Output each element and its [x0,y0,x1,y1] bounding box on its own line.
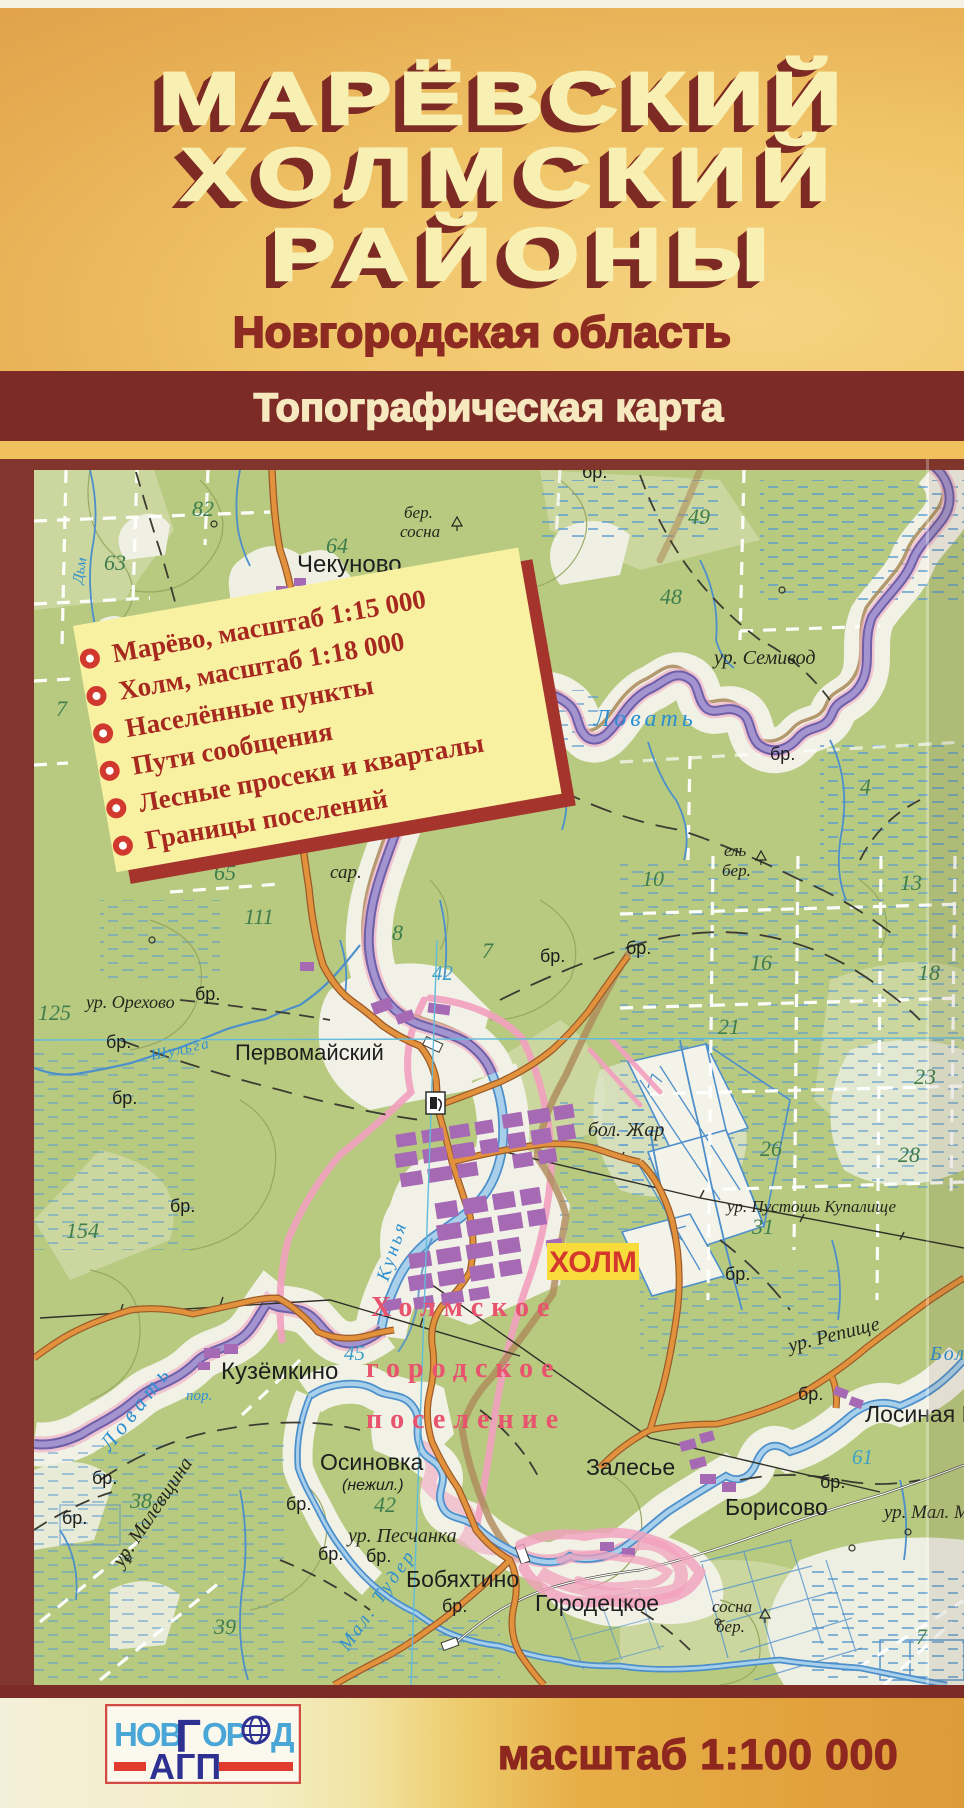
svg-text:Залесье: Залесье [586,1454,675,1480]
svg-text:ур. Орехово: ур. Орехово [84,992,175,1012]
svg-text:13: 13 [900,870,922,895]
svg-text:38: 38 [129,1488,152,1513]
svg-text:64: 64 [326,533,348,558]
svg-text:городское: городское [366,1353,562,1384]
svg-text:ель: ель [724,841,747,860]
svg-text:бр.: бр. [770,744,795,764]
svg-text:Ловать: Ловать [593,706,697,732]
svg-text:сар.: сар. [330,862,362,883]
svg-text:бр.: бр. [626,938,651,958]
svg-text:бр.: бр. [582,470,607,482]
svg-text:Кузёмкино: Кузёмкино [221,1358,338,1385]
svg-text:Холмское: Холмское [371,1292,557,1323]
svg-text:бр.: бр. [286,1494,311,1514]
svg-text:63: 63 [104,550,126,575]
svg-text:45: 45 [344,1341,365,1365]
svg-text:42: 42 [432,961,454,985]
svg-text:бол. Жар: бол. Жар [588,1119,664,1141]
svg-text:28: 28 [898,1142,920,1167]
svg-text:Первомайский: Первомайский [235,1040,384,1065]
svg-text:39: 39 [213,1614,236,1639]
svg-text:125: 125 [38,1000,71,1025]
svg-text:бр.: бр. [725,1264,750,1284]
svg-text:бр.: бр. [366,1546,391,1566]
svg-text:бр.: бр. [798,1384,823,1404]
svg-text:бр.: бр. [62,1508,87,1528]
svg-text:21: 21 [718,1014,740,1039]
svg-text:бр.: бр. [195,984,220,1004]
svg-text:ур. Песчанка: ур. Песчанка [346,1525,457,1547]
svg-text:бр.: бр. [442,1596,467,1616]
svg-text:7: 7 [56,696,68,721]
svg-text:Городецкое: Городецкое [535,1590,659,1616]
svg-text:49: 49 [688,504,710,529]
svg-text:154: 154 [66,1218,99,1243]
svg-text:61: 61 [852,1445,873,1469]
svg-text:65: 65 [214,860,236,885]
svg-text:Борисово: Борисово [725,1494,828,1520]
svg-text:31: 31 [751,1214,774,1239]
svg-text:бер.: бер. [722,861,751,880]
svg-text:111: 111 [244,904,274,929]
svg-text:АГП: АГП [149,1746,221,1784]
svg-text:ур. Пустошь Купалище: ур. Пустошь Купалище [725,1197,897,1216]
svg-text:пор.: пор. [186,1388,212,1404]
svg-text:Д: Д [271,1716,295,1753]
svg-text:бр.: бр. [112,1088,137,1108]
svg-text:бр.: бр. [92,1468,117,1488]
svg-text:48: 48 [660,584,682,609]
svg-text:42: 42 [374,1492,396,1517]
svg-text:бр.: бр. [820,1472,845,1492]
svg-text:ХОЛМ: ХОЛМ [549,1246,637,1279]
svg-text:82: 82 [192,496,214,521]
svg-text:бер.: бер. [404,503,433,522]
svg-text:сосна: сосна [712,1597,752,1616]
svg-text:бр.: бр. [170,1196,195,1216]
svg-text:поселение: поселение [366,1404,566,1435]
svg-text:7: 7 [482,938,494,963]
svg-text:Бобяхтино: Бобяхтино [406,1566,519,1592]
svg-text:бр.: бр. [106,1032,131,1052]
svg-text:ур. Семивод: ур. Семивод [712,647,816,669]
svg-text:Осиновка: Осиновка [320,1449,424,1475]
svg-text:бр.: бр. [540,946,565,966]
svg-text:бр.: бр. [318,1544,343,1564]
svg-text:сосна: сосна [400,522,440,541]
svg-text:16: 16 [750,950,772,975]
svg-text:8: 8 [392,920,403,945]
svg-text:10: 10 [642,866,664,891]
svg-text:26: 26 [760,1136,782,1161]
svg-text:4: 4 [860,774,871,799]
